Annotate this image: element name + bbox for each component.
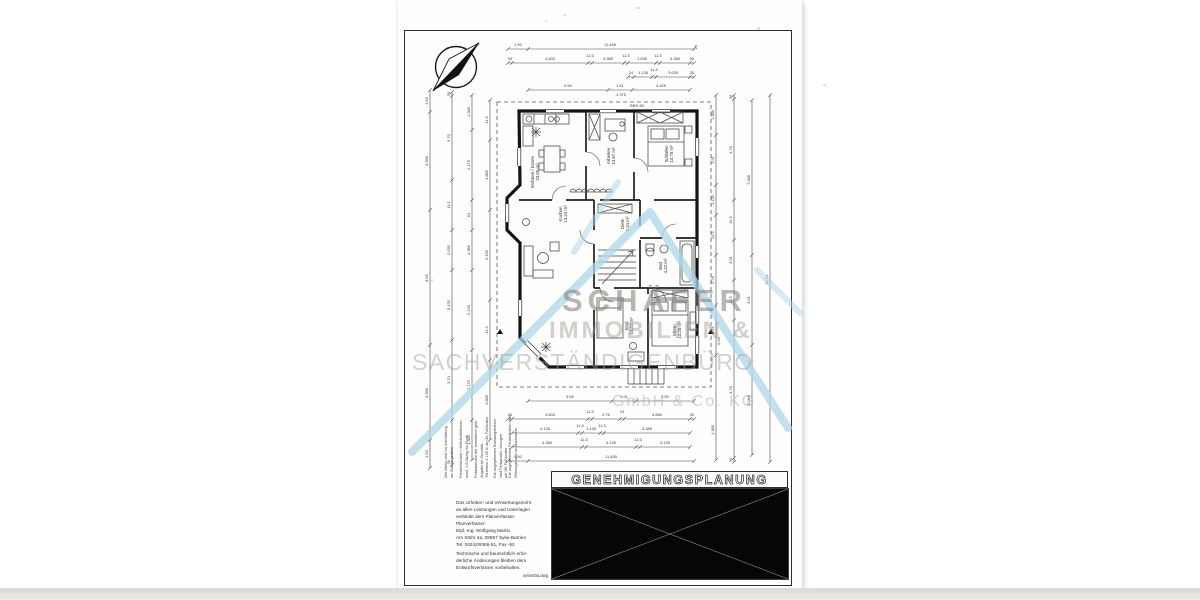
dimension-label: 8.65 bbox=[424, 273, 429, 282]
dimension-label: 1.885 bbox=[484, 394, 489, 405]
dimension-chain bbox=[510, 431, 692, 435]
dimension-label: 1.385 bbox=[466, 106, 471, 117]
dimension-label: 11.5 bbox=[634, 437, 642, 442]
dimension-label: 11.5 bbox=[728, 215, 733, 223]
dimension-label: 1.51 bbox=[710, 325, 715, 334]
plan-note-column: Die angegebenen Fensterhöhen sindÖffnung… bbox=[508, 416, 519, 479]
dimension-label: 11.5 bbox=[580, 437, 588, 442]
dimension-label: 1.50 bbox=[514, 42, 523, 47]
copyright-line: Planverfasser: bbox=[456, 520, 551, 527]
scanned-plan-page: 1.5011.48525304.63011.53.38511.51.63511.… bbox=[0, 0, 1200, 600]
dimension-label: 1.135 bbox=[638, 70, 649, 75]
dimension-label: 1.51 bbox=[616, 83, 625, 88]
scan-speck bbox=[563, 14, 566, 16]
dimension-label: 7.085 bbox=[746, 174, 751, 185]
dimension-chain bbox=[526, 88, 692, 92]
drawing-filename: oebe00a.dwg bbox=[498, 573, 548, 578]
dimension-label: 3.01 bbox=[746, 295, 751, 304]
dimension-chain bbox=[506, 417, 696, 421]
dimension-label: 4.630 bbox=[545, 56, 556, 61]
dimension-label: 11.5 bbox=[484, 325, 489, 333]
dimension-label: 3.135 bbox=[606, 440, 617, 445]
dimension-label: 4.885 bbox=[652, 412, 663, 417]
scan-speck bbox=[823, 84, 826, 86]
sheet-title: GENEHMIGUNGSPLANUNG bbox=[571, 473, 767, 487]
copyright-line: verbleibt dem Planverfasser. bbox=[456, 513, 551, 520]
scan-speck bbox=[757, 27, 760, 30]
dimension-chain bbox=[510, 445, 692, 449]
dimension-label: 2.175 bbox=[466, 159, 471, 170]
dimension-label: 24 bbox=[620, 409, 625, 414]
dimension-label: 3.635 bbox=[668, 70, 679, 75]
dimension-label: 3.135 bbox=[660, 440, 671, 445]
dimension-label: 1.135 bbox=[586, 426, 597, 431]
dimension-label: 1.885 bbox=[484, 169, 489, 180]
dimension-label: 13.74 bbox=[764, 274, 769, 285]
dimension-label: 24 bbox=[629, 70, 634, 75]
dimension-label: 1.50 bbox=[424, 449, 429, 458]
dimension-label: 5.135 bbox=[446, 299, 451, 310]
dimension-label: 61 bbox=[466, 212, 471, 217]
dimension-label: 5.55 bbox=[566, 394, 575, 399]
dimension-label: 11.5 bbox=[728, 295, 733, 303]
dimension-label: 11.5 bbox=[576, 423, 584, 428]
dimension-label: 4.135 bbox=[540, 426, 551, 431]
dimension-chain bbox=[488, 98, 492, 442]
scan-speck bbox=[545, 20, 547, 22]
room-label: Kochen13.24 m² bbox=[558, 205, 568, 223]
scan-speck bbox=[431, 279, 433, 282]
revision-note: Technische und baurechtlich erfor- derli… bbox=[456, 550, 551, 571]
dimension-label: 4.365 bbox=[424, 155, 429, 166]
dimension-chain bbox=[626, 75, 696, 79]
dimension-label: 5.70 bbox=[446, 133, 451, 142]
dimension-label: 5.55 bbox=[564, 83, 573, 88]
dimension-label: 3.385 bbox=[603, 56, 614, 61]
dimension-label: 4.425 bbox=[656, 83, 667, 88]
revision-line: Technische und baurechtlich erfor- bbox=[456, 550, 551, 557]
dimension-label: 4.630 bbox=[545, 412, 556, 417]
dimension-label: 2.635 bbox=[446, 244, 451, 255]
dimension-label: 1.385 bbox=[710, 424, 715, 435]
dimension-label: 30 bbox=[690, 70, 695, 75]
dimension-label: 2.76 bbox=[602, 412, 611, 417]
title-box: GENEHMIGUNGSPLANUNG bbox=[551, 471, 788, 488]
dimension-label: 3.385 bbox=[642, 426, 653, 431]
plan-note-column: Alle Maße sind vor Ausführungam Bau zu p… bbox=[444, 426, 455, 478]
dimension-label: 11.5 bbox=[622, 53, 630, 58]
dimension-label: 11.5 bbox=[598, 423, 606, 428]
dimension-label: 11.5 bbox=[446, 200, 451, 208]
dimension-label: 11.485 bbox=[605, 454, 618, 459]
dimension-chain bbox=[526, 399, 696, 403]
room-label: Schlafen14.75 m² bbox=[664, 145, 674, 163]
dimension-label: 1.135 bbox=[710, 194, 715, 205]
dimension-label: 4.385 bbox=[542, 440, 553, 445]
dimension-label: 11.5 bbox=[586, 53, 594, 58]
dimension-label: 1.635 bbox=[637, 56, 648, 61]
dimension-chain bbox=[506, 61, 696, 65]
dimension-label: 11.5 bbox=[586, 409, 594, 414]
dimension-label: 5.135 bbox=[466, 304, 471, 315]
revision-line: Entwurfsverfasser vorbehalten. bbox=[456, 564, 551, 571]
dimension-label: 30 bbox=[728, 457, 733, 462]
copyright-line: Dipl.-Ing. Wolfgang Martin bbox=[456, 527, 551, 534]
dimension-chain bbox=[470, 93, 474, 462]
copyright-line: Das Urheber- und Verwertungsrecht bbox=[456, 499, 551, 506]
dimension-label: 2.26 bbox=[710, 275, 715, 284]
dimension-label: 11.5 bbox=[484, 115, 489, 123]
dimension-label: 25 bbox=[693, 44, 698, 49]
dimension-label: 11.5 bbox=[650, 67, 658, 72]
dimension-chain bbox=[450, 90, 454, 467]
redacted-title-block bbox=[551, 488, 789, 580]
dimension-label: 4.50 bbox=[661, 394, 670, 399]
dimension-label: 11.5 bbox=[654, 53, 662, 58]
dimension-label: 30 bbox=[690, 412, 695, 417]
dimension-label: 1.385 bbox=[466, 244, 471, 255]
dimension-label: 1.91 bbox=[620, 394, 629, 399]
dimension-label: 1.50 bbox=[424, 96, 429, 105]
copyright-line: an allen Leistungen und Unterlagen bbox=[456, 506, 551, 513]
copyright-line: Tel. 04242/9366-51, Fax -52 bbox=[456, 541, 551, 548]
dimension-label: 2.175 bbox=[466, 379, 471, 390]
dimension-label: 4.365 bbox=[424, 387, 429, 398]
dimension-chain bbox=[506, 47, 696, 51]
dimension-label: 30 bbox=[508, 56, 513, 61]
dimension-label: 2.135 bbox=[484, 249, 489, 260]
north-arrow-icon bbox=[433, 43, 479, 91]
dimension-label: 3.01 bbox=[728, 255, 733, 264]
dimension-label: BRH 80 bbox=[630, 103, 645, 108]
dimension-label: 1.51 bbox=[710, 155, 715, 164]
dimension-label: 3.385 bbox=[670, 56, 681, 61]
scan-speck bbox=[636, 7, 640, 9]
dimension-label: 30 bbox=[728, 94, 733, 99]
dimension-label: 5.085 bbox=[746, 394, 751, 405]
dimension-label: 3.70 bbox=[446, 375, 451, 384]
dimension-label: 4.76 bbox=[728, 145, 733, 154]
redaction-cross-lines bbox=[552, 489, 788, 579]
revision-line: derliche Änderungen bleiben dem bbox=[456, 557, 551, 564]
dimension-label: 11.5 bbox=[710, 230, 715, 238]
dimension-label: 30 bbox=[690, 56, 695, 61]
dimension-label: 4.76 bbox=[728, 385, 733, 394]
plan-note-column: Fensterflächen = Nettolichtflächen,mind.… bbox=[459, 419, 470, 478]
dimension-label: 11.485 bbox=[604, 42, 617, 47]
plan-note-column: Rohbaumaße der Innentüren gem.Angabe im … bbox=[474, 417, 491, 478]
dimension-label: 0.00 bbox=[716, 336, 721, 345]
dimension-label: 1.385 bbox=[710, 109, 715, 120]
dimension-chain bbox=[506, 459, 696, 463]
dimension-label: 1.375 bbox=[616, 92, 627, 97]
dimension-label: 30 bbox=[446, 91, 451, 96]
copyright-line: Am Stühr 4a, 28857 Syke-Barrien bbox=[456, 534, 551, 541]
copyright-note: Das Urheber- und Verwertungsrecht an all… bbox=[456, 499, 551, 548]
room-label: Arbeiten13.87 m² bbox=[606, 147, 616, 165]
